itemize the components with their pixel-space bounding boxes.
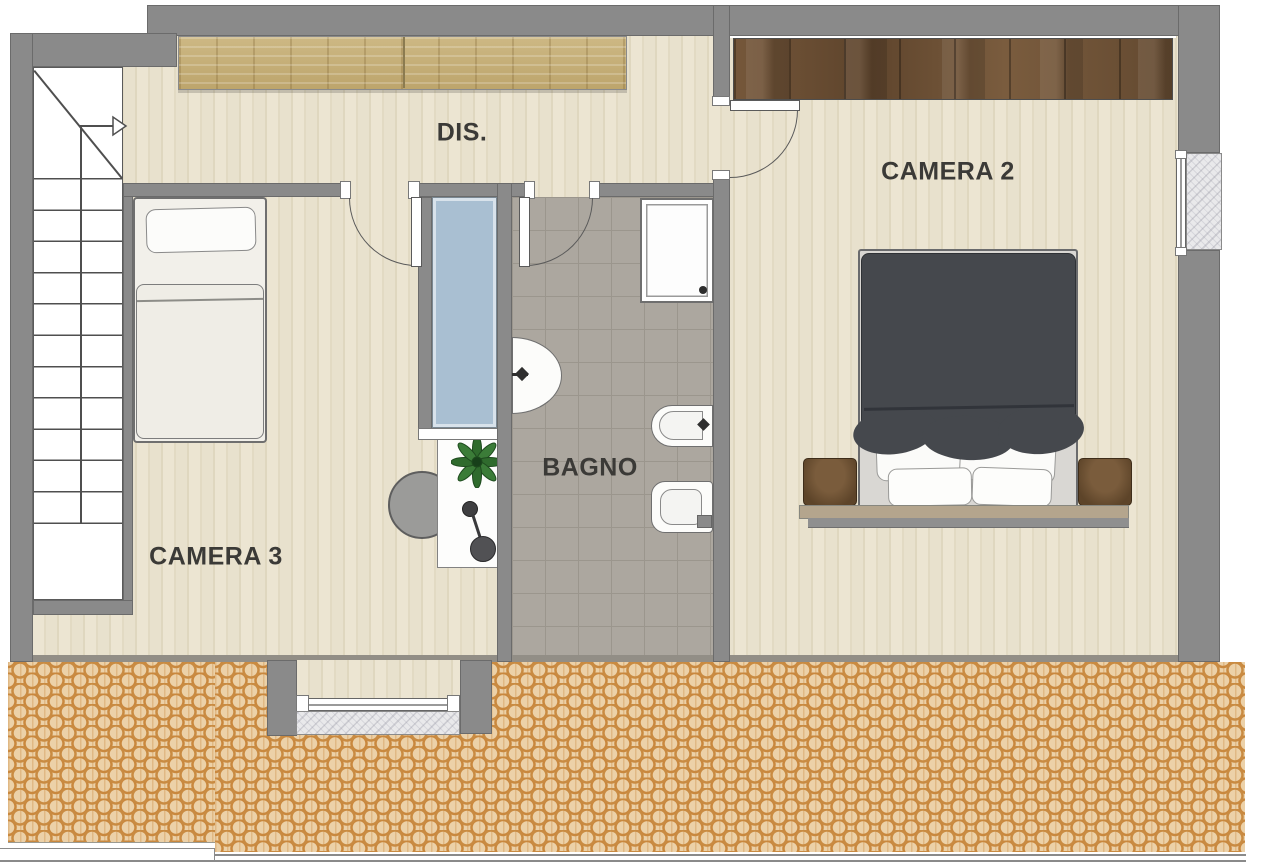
- wall-top-left-step: [10, 33, 177, 67]
- roof-terrace-left: [8, 662, 215, 843]
- door-camera3-jamb-left: [340, 181, 351, 199]
- double-bed-pillow-front-left: [888, 467, 973, 506]
- toilet-bowl: [660, 489, 702, 525]
- window-south-frame: [309, 698, 448, 711]
- glass-niche: [432, 197, 497, 428]
- plant-icon: [451, 436, 503, 488]
- wall-dis-south-2: [419, 183, 530, 197]
- door-bagno-leaf: [519, 197, 530, 267]
- single-bed: [133, 197, 267, 443]
- stair-direction-arrow-icon: [77, 113, 129, 139]
- window-recess-floor: [297, 660, 460, 700]
- window-south-glass-line: [309, 704, 448, 706]
- double-bed-pillow-front-right: [971, 467, 1052, 508]
- staircase: [33, 67, 123, 600]
- roof-edge-line: [33, 655, 1178, 662]
- single-bed-pillow: [145, 207, 256, 254]
- wardrobe-dis-shadow: [178, 90, 627, 93]
- window-right-jamb-bottom: [1175, 247, 1187, 256]
- wall-left: [10, 33, 33, 662]
- window-pier-left: [267, 660, 297, 736]
- stairwell-wall-right: [123, 183, 133, 615]
- door-bagno-jamb-right: [589, 181, 600, 199]
- room-label-camera2: CAMERA 2: [881, 158, 1015, 187]
- bath-wall-pipe: [697, 515, 712, 528]
- door-camera3-leaf: [411, 197, 422, 267]
- stool: [470, 536, 496, 562]
- window-right-jamb-top: [1175, 150, 1187, 159]
- stair-treads: [34, 178, 122, 524]
- desk-lamp-base: [462, 501, 478, 517]
- wall-camera2-left: [713, 177, 730, 662]
- nightstand-left: [803, 458, 857, 506]
- wall-dis-south-1: [123, 183, 347, 197]
- shower-door-handle: [699, 286, 707, 294]
- wardrobe-dis: [178, 36, 627, 90]
- wall-right-bottom: [1178, 250, 1220, 662]
- room-label-bagno: BAGNO: [542, 454, 638, 483]
- roof-eave-bottom-line: [0, 860, 1246, 862]
- door-camera2-jamb-bottom: [712, 170, 730, 180]
- window-south-sill: [296, 711, 460, 735]
- bidet-bowl: [659, 411, 703, 440]
- niche-cap-bottom: [418, 428, 498, 440]
- door-camera2-jamb-top: [712, 96, 730, 106]
- wall-right-top: [1178, 5, 1220, 153]
- stair-center-line: [80, 126, 82, 523]
- window-right-frame: [1176, 153, 1186, 250]
- window-pier-right: [460, 660, 492, 734]
- nightstand-right: [1078, 458, 1132, 506]
- stairwell-wall-bottom: [33, 600, 133, 615]
- wardrobe-camera2: [733, 38, 1173, 100]
- door-camera2-leaf: [730, 100, 800, 111]
- wall-dis-south-3: [591, 183, 730, 197]
- window-right-glass-line: [1180, 153, 1182, 250]
- room-label-dis: DIS.: [437, 119, 488, 148]
- wall-top: [147, 5, 1220, 36]
- wall-bagno-left: [497, 183, 512, 662]
- bench-shelf-edge: [808, 518, 1129, 528]
- window-right-sill: [1186, 153, 1222, 250]
- floor-plan: DIS. CAMERA 2 CAMERA 3 BAGNO: [0, 0, 1261, 862]
- bench-shelf: [799, 505, 1129, 519]
- single-bed-duvet: [136, 284, 264, 439]
- wardrobe-dis-divider: [403, 37, 405, 88]
- room-label-camera3: CAMERA 3: [149, 543, 283, 572]
- roof-eave-right-line: [215, 854, 1246, 856]
- wall-camera2-left-top: [713, 5, 730, 100]
